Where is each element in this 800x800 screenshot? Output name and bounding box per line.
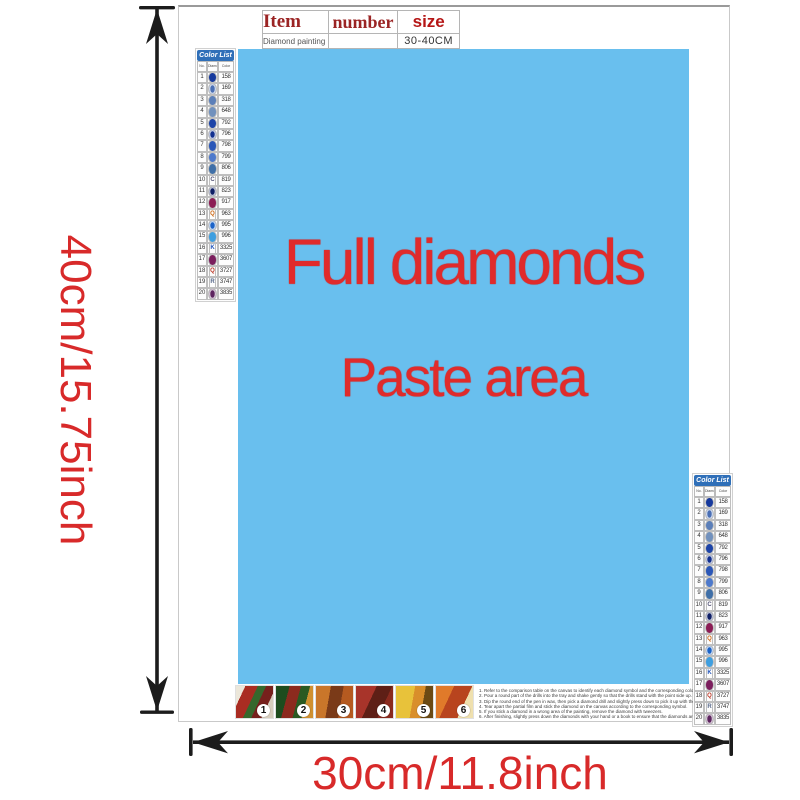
color-list-header-row: No.DiamondColor	[197, 61, 234, 72]
symbol-letter: Q	[706, 691, 713, 702]
color-row-no: 6	[694, 554, 704, 565]
color-row-no: 8	[694, 577, 704, 588]
color-row-code: 169	[218, 83, 234, 94]
color-row-no: 19	[694, 702, 704, 713]
diamond-symbol	[207, 106, 218, 117]
diamond-symbol	[207, 231, 218, 242]
diamond-symbol	[207, 152, 218, 163]
color-row-no: 7	[694, 565, 704, 576]
color-row-code: 169	[715, 508, 731, 519]
symbol-dot-icon	[208, 140, 217, 151]
color-row: 11823	[197, 186, 234, 197]
color-row: 18Q3727	[197, 266, 234, 277]
color-row-code: 963	[218, 209, 234, 220]
number-header: number	[328, 11, 398, 34]
color-row-code: 158	[715, 497, 731, 508]
color-row-code: 823	[218, 186, 234, 197]
diamond-symbol	[704, 713, 715, 724]
color-row: 2169	[197, 83, 234, 94]
symbol-dot-icon	[705, 531, 714, 542]
color-row: 7798	[694, 565, 731, 576]
color-row-no: 13	[694, 634, 704, 645]
color-row-code: 819	[218, 175, 234, 186]
color-row-code: 3325	[218, 243, 234, 254]
diamond-symbol	[207, 72, 218, 83]
paste-area-title-line2: Paste area	[238, 345, 689, 409]
color-row-code: 318	[218, 95, 234, 106]
color-row: 8799	[197, 152, 234, 163]
color-row: 4648	[694, 531, 731, 542]
diamond-symbol	[207, 95, 218, 106]
step-number-badge: 6	[457, 704, 470, 717]
color-row: 5792	[197, 118, 234, 129]
item-value: Diamond painting	[263, 34, 329, 49]
color-row: 203835	[197, 288, 234, 299]
color-row: 173607	[197, 254, 234, 265]
diamond-symbol	[207, 288, 218, 299]
diamond-symbol	[207, 129, 218, 140]
diamond-symbol: Q	[704, 634, 715, 645]
color-row: 18Q3727	[694, 691, 731, 702]
color-row-no: 8	[197, 152, 207, 163]
diamond-symbol	[207, 163, 218, 174]
color-row-no: 10	[197, 175, 207, 186]
color-row: 4648	[197, 106, 234, 117]
color-row-code: 799	[715, 577, 731, 588]
size-value: 30-40CM	[398, 34, 460, 49]
symbol-dot-icon	[705, 713, 714, 724]
color-row-no: 5	[694, 543, 704, 554]
color-row: 10C819	[694, 600, 731, 611]
color-row: 203835	[694, 713, 731, 724]
color-row-code: 3607	[715, 679, 731, 690]
diamond-symbol	[207, 254, 218, 265]
item-header: Item	[263, 11, 329, 34]
color-row-no: 3	[197, 95, 207, 106]
color-row-code: 996	[715, 656, 731, 667]
symbol-dot-icon	[705, 497, 714, 508]
color-row-code: 963	[715, 634, 731, 645]
color-row-code: 3835	[715, 713, 731, 724]
diamond-symbol	[207, 140, 218, 151]
color-row-no: 14	[197, 220, 207, 231]
item-info-table: Item number size Diamond painting 30-40C…	[262, 10, 460, 49]
diamond-symbol	[207, 197, 218, 208]
color-row-code: 806	[218, 163, 234, 174]
paste-area-title-line1: Full diamonds	[238, 225, 689, 299]
color-row-code: 792	[218, 118, 234, 129]
step-photo: 6	[435, 685, 474, 719]
color-list-col-header: Diamond	[207, 61, 218, 72]
color-row: 3318	[197, 95, 234, 106]
diamond-symbol: K	[704, 668, 715, 679]
color-row-no: 17	[197, 254, 207, 265]
symbol-dot-icon	[208, 163, 217, 174]
diamond-symbol	[704, 543, 715, 554]
symbol-dot-icon	[705, 645, 714, 656]
color-row: 15996	[197, 231, 234, 242]
diamond-symbol	[207, 186, 218, 197]
symbol-letter: K	[209, 243, 215, 254]
instructions-text: 1. Refer to the comparison table on the …	[479, 688, 693, 720]
color-row-code: 995	[218, 220, 234, 231]
symbol-dot-icon	[705, 679, 714, 690]
diamond-symbol	[704, 531, 715, 542]
color-row-code: 3727	[218, 266, 234, 277]
symbol-dot-icon	[705, 565, 714, 576]
instruction-line: 2. Pour a round part of the drills into …	[479, 693, 693, 698]
color-row-no: 5	[197, 118, 207, 129]
color-row-code: 3325	[715, 668, 731, 679]
diamond-symbol: K	[207, 243, 218, 254]
width-dimension-label: 30cm/11.8inch	[250, 746, 670, 800]
diamond-symbol: C	[207, 175, 218, 186]
color-row: 1158	[197, 72, 234, 83]
symbol-dot-icon	[208, 72, 217, 83]
color-row: 16K3325	[694, 668, 731, 679]
color-row: 12917	[197, 197, 234, 208]
color-row-code: 917	[218, 197, 234, 208]
color-row-no: 2	[694, 508, 704, 519]
color-list-right: Color ListNo.DiamondColor115821693318464…	[692, 473, 733, 727]
color-row-no: 4	[197, 106, 207, 117]
color-row-no: 1	[197, 72, 207, 83]
symbol-dot-icon	[705, 508, 714, 519]
color-row-no: 3	[694, 520, 704, 531]
color-row-code: 917	[715, 622, 731, 633]
color-row: 6796	[197, 129, 234, 140]
step-number-badge: 5	[417, 704, 430, 717]
color-row: 16K3325	[197, 243, 234, 254]
height-dimension-label: 40cm/15.75inch	[50, 230, 100, 550]
color-row-no: 11	[197, 186, 207, 197]
canvas-sheet: Item number size Diamond painting 30-40C…	[178, 5, 730, 722]
color-row: 11823	[694, 611, 731, 622]
color-row-no: 1	[694, 497, 704, 508]
color-row-code: 3607	[218, 254, 234, 265]
color-row-code: 158	[218, 72, 234, 83]
diamond-symbol: Q	[207, 209, 218, 220]
diamond-symbol	[704, 554, 715, 565]
color-row: 14995	[197, 220, 234, 231]
size-header: size	[398, 11, 460, 34]
symbol-dot-icon	[208, 186, 217, 197]
color-row: 12917	[694, 622, 731, 633]
color-row-no: 18	[197, 266, 207, 277]
symbol-dot-icon	[208, 95, 217, 106]
color-row-code: 796	[218, 129, 234, 140]
symbol-dot-icon	[208, 152, 217, 163]
color-row-code: 3747	[218, 277, 234, 288]
diamond-symbol	[704, 645, 715, 656]
diamond-symbol	[207, 118, 218, 129]
symbol-dot-icon	[208, 118, 217, 129]
step-photo-strip: 123456	[235, 685, 475, 721]
symbol-dot-icon	[208, 231, 217, 242]
color-row: 1158	[694, 497, 731, 508]
step-photo: 4	[355, 685, 394, 719]
symbol-dot-icon	[208, 197, 217, 208]
diamond-symbol: Q	[704, 691, 715, 702]
color-row-no: 12	[197, 197, 207, 208]
diamond-symbol	[207, 220, 218, 231]
symbol-dot-icon	[705, 577, 714, 588]
step-photo: 5	[395, 685, 434, 719]
symbol-letter: Q	[209, 266, 216, 277]
color-list-col-header: Color	[715, 486, 731, 497]
symbol-dot-icon	[705, 588, 714, 599]
instruction-line: 6. After finishing, slightly press down …	[479, 714, 693, 719]
symbol-letter: Q	[209, 209, 216, 220]
color-list-col-header: Color	[218, 61, 234, 72]
color-list-title: Color List	[197, 50, 234, 61]
color-row-code: 648	[715, 531, 731, 542]
color-row-code: 996	[218, 231, 234, 242]
color-row: 13Q963	[197, 209, 234, 220]
color-row: 19R3747	[197, 277, 234, 288]
color-row-no: 15	[197, 231, 207, 242]
color-row-no: 11	[694, 611, 704, 622]
diamond-symbol	[207, 83, 218, 94]
symbol-dot-icon	[705, 611, 714, 622]
symbol-dot-icon	[705, 656, 714, 667]
color-list-col-header: No.	[197, 61, 207, 72]
color-row: 19R3747	[694, 702, 731, 713]
color-row-code: 798	[218, 140, 234, 151]
diamond-symbol: R	[207, 277, 218, 288]
color-row-no: 12	[694, 622, 704, 633]
diamond-symbol	[704, 679, 715, 690]
symbol-dot-icon	[208, 129, 217, 140]
symbol-letter: Q	[706, 634, 713, 645]
diamond-symbol	[704, 520, 715, 531]
color-row-no: 2	[197, 83, 207, 94]
step-number-badge: 2	[297, 704, 310, 717]
color-row-no: 6	[197, 129, 207, 140]
diamond-symbol	[704, 611, 715, 622]
color-row: 3318	[694, 520, 731, 531]
number-value	[328, 34, 398, 49]
height-dimension-arrow	[134, 4, 180, 720]
symbol-dot-icon	[705, 520, 714, 531]
color-row: 15996	[694, 656, 731, 667]
color-row-code: 995	[715, 645, 731, 656]
diamond-symbol	[704, 588, 715, 599]
color-row-code: 798	[715, 565, 731, 576]
color-row-code: 792	[715, 543, 731, 554]
color-row: 2169	[694, 508, 731, 519]
color-row-no: 16	[694, 668, 704, 679]
color-row-no: 9	[694, 588, 704, 599]
color-row: 5792	[694, 543, 731, 554]
diamond-symbol: C	[704, 600, 715, 611]
symbol-letter: C	[706, 600, 712, 611]
step-number-badge: 4	[377, 704, 390, 717]
diamond-symbol	[704, 577, 715, 588]
color-list-left: Color ListNo.DiamondColor115821693318464…	[195, 48, 236, 302]
color-row-no: 4	[694, 531, 704, 542]
diamond-symbol: R	[704, 702, 715, 713]
symbol-dot-icon	[705, 622, 714, 633]
color-row-no: 14	[694, 645, 704, 656]
color-row-code: 3747	[715, 702, 731, 713]
symbol-dot-icon	[705, 554, 714, 565]
color-row-no: 13	[197, 209, 207, 220]
step-number-badge: 3	[337, 704, 350, 717]
symbol-letter: R	[209, 277, 215, 288]
color-row: 9806	[694, 588, 731, 599]
diamond-symbol: Q	[207, 266, 218, 277]
color-row-code: 3727	[715, 691, 731, 702]
color-row: 7798	[197, 140, 234, 151]
symbol-dot-icon	[208, 254, 217, 265]
symbol-dot-icon	[208, 288, 217, 299]
step-number-badge: 1	[257, 704, 270, 717]
diamond-symbol	[704, 497, 715, 508]
color-row-code: 318	[715, 520, 731, 531]
color-row-no: 16	[197, 243, 207, 254]
symbol-dot-icon	[208, 220, 217, 231]
color-row-code: 819	[715, 600, 731, 611]
color-row: 173607	[694, 679, 731, 690]
color-list-title: Color List	[694, 475, 731, 486]
color-row-code: 796	[715, 554, 731, 565]
symbol-letter: C	[209, 175, 215, 186]
symbol-dot-icon	[208, 83, 217, 94]
color-row: 13Q963	[694, 634, 731, 645]
diamond-symbol	[704, 656, 715, 667]
color-row-no: 10	[694, 600, 704, 611]
color-row: 10C819	[197, 175, 234, 186]
product-image: 40cm/15.75inch Item number size Diamond …	[0, 0, 800, 800]
step-photo: 1	[235, 685, 274, 719]
color-row-code: 648	[218, 106, 234, 117]
color-row-no: 7	[197, 140, 207, 151]
symbol-dot-icon	[208, 106, 217, 117]
diamond-symbol	[704, 622, 715, 633]
color-row: 9806	[197, 163, 234, 174]
color-row-code: 799	[218, 152, 234, 163]
step-photo: 3	[315, 685, 354, 719]
symbol-letter: K	[706, 668, 712, 679]
color-row-no: 20	[197, 288, 207, 299]
color-row: 8799	[694, 577, 731, 588]
color-list-col-header: Diamond	[704, 486, 715, 497]
color-row-no: 17	[694, 679, 704, 690]
step-photo: 2	[275, 685, 314, 719]
color-row: 14995	[694, 645, 731, 656]
color-row-code: 3835	[218, 288, 234, 299]
color-row-code: 806	[715, 588, 731, 599]
paste-area: Full diamonds Paste area	[238, 49, 689, 684]
symbol-letter: R	[706, 702, 712, 713]
color-row-no: 20	[694, 713, 704, 724]
color-row-no: 9	[197, 163, 207, 174]
symbol-dot-icon	[705, 543, 714, 554]
color-list-col-header: No.	[694, 486, 704, 497]
color-row-code: 823	[715, 611, 731, 622]
diamond-symbol	[704, 565, 715, 576]
color-row: 6796	[694, 554, 731, 565]
color-row-no: 15	[694, 656, 704, 667]
color-row-no: 18	[694, 691, 704, 702]
diamond-symbol	[704, 508, 715, 519]
color-row-no: 19	[197, 277, 207, 288]
color-list-header-row: No.DiamondColor	[694, 486, 731, 497]
